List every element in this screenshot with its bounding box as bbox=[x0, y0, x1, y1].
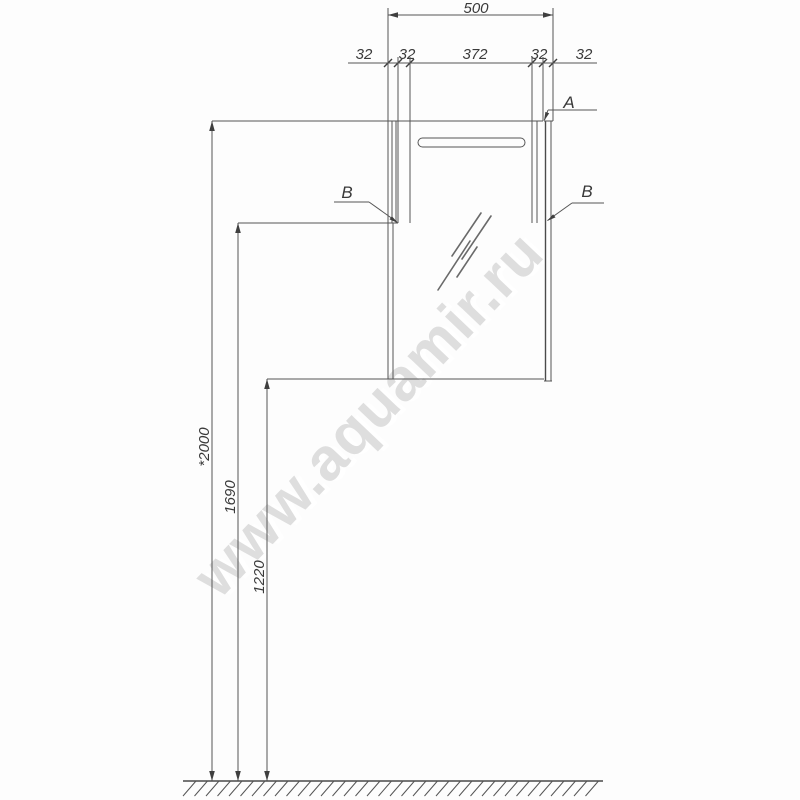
light-slot bbox=[418, 138, 525, 147]
dim-label-32-outer-left: 32 bbox=[356, 46, 373, 63]
callout-b-right-label: B bbox=[581, 182, 592, 201]
callout-b-left-label: B bbox=[341, 183, 352, 202]
watermark: www.aquamir.ru www.aquamir.ru bbox=[180, 218, 562, 610]
dimension-top-total: 500 bbox=[388, 0, 553, 18]
callout-a: A bbox=[544, 93, 597, 121]
dim-label-2000: *2000 bbox=[196, 427, 213, 467]
dim-label-500: 500 bbox=[463, 0, 489, 17]
floor-line bbox=[183, 781, 603, 796]
dim-label-32-inner-left: 32 bbox=[399, 46, 416, 63]
dimension-top-segments: 32 32 372 32 32 bbox=[348, 46, 597, 67]
callout-a-label: A bbox=[562, 93, 574, 112]
dim-label-1690: 1690 bbox=[222, 480, 239, 514]
dimension-heights: *2000 1690 1220 bbox=[196, 121, 270, 781]
ground-hatching bbox=[183, 781, 599, 796]
callout-b-right: B bbox=[547, 182, 604, 221]
watermark-text: www.aquamir.ru bbox=[180, 218, 556, 610]
dim-label-372: 372 bbox=[462, 46, 488, 63]
dim-label-32-inner-right: 32 bbox=[531, 46, 548, 63]
dim-label-1220: 1220 bbox=[251, 560, 268, 594]
mirror-cabinet-installation-drawing: www.aquamir.ru www.aquamir.ru 500 32 32 … bbox=[0, 0, 800, 800]
technical-drawing-page: www.aquamir.ru www.aquamir.ru 500 32 32 … bbox=[0, 0, 800, 800]
dim-label-32-outer-right: 32 bbox=[576, 46, 593, 63]
